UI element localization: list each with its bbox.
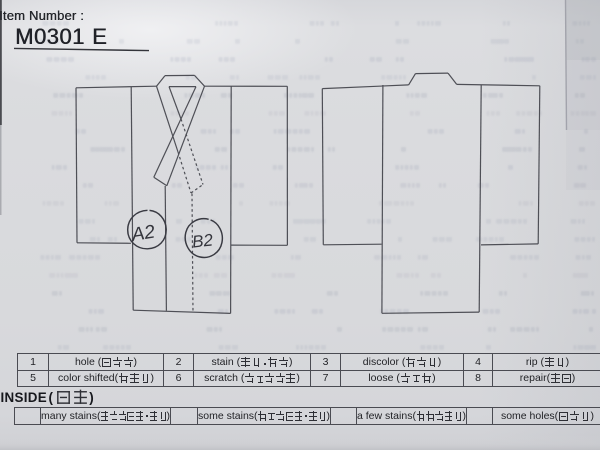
svg-text:A2: A2 <box>129 222 157 247</box>
svg-text:B2: B2 <box>191 230 214 251</box>
